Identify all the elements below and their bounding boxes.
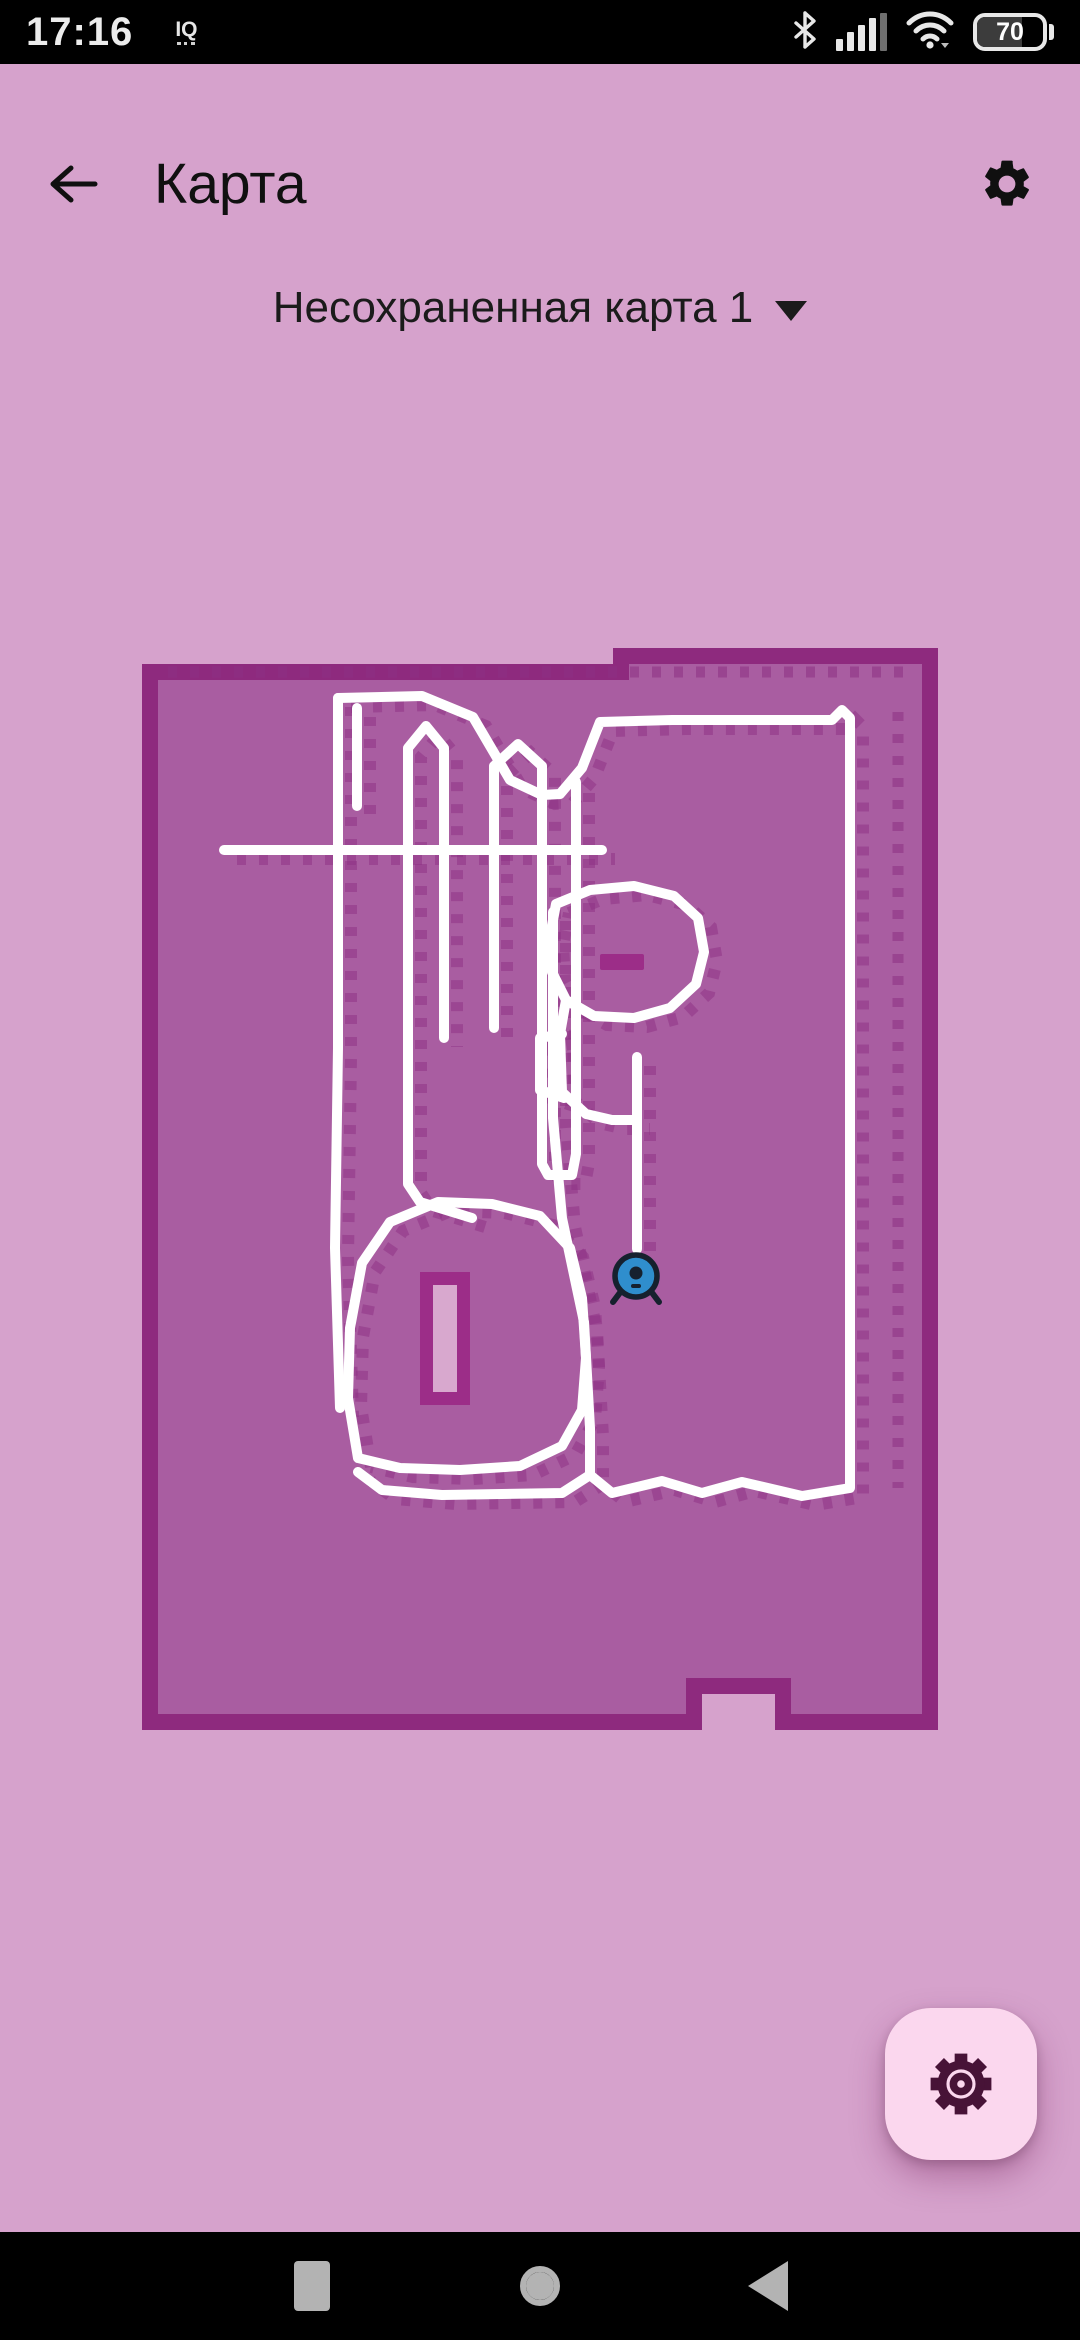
back-arrow-icon (45, 160, 101, 208)
robot-marker (613, 1255, 659, 1302)
nav-recents-button[interactable] (284, 2258, 340, 2314)
nav-back-button[interactable] (740, 2258, 796, 2314)
status-bar: 17:16 IQ (0, 0, 1080, 64)
page-title: Карта (154, 151, 307, 217)
settings-button[interactable] (978, 155, 1036, 213)
map-canvas[interactable] (142, 648, 938, 1730)
recents-square-icon (294, 2261, 330, 2311)
status-time: 17:16 (26, 10, 133, 55)
notification-icon-iq: IQ (175, 19, 197, 45)
app-header: Карта (0, 128, 1080, 240)
gear-outline-icon (923, 2046, 999, 2122)
map-selector-label: Несохраненная карта 1 (273, 283, 754, 333)
nav-home-button[interactable] (512, 2258, 568, 2314)
wifi-icon (905, 9, 955, 56)
back-button[interactable] (44, 155, 102, 213)
battery-indicator: 70 (973, 13, 1054, 51)
battery-percent: 70 (996, 18, 1024, 47)
home-circle-icon (520, 2266, 560, 2306)
map-selector-dropdown[interactable]: Несохраненная карта 1 (0, 276, 1080, 340)
screen: 17:16 IQ (0, 0, 1080, 2340)
cell-signal-icon (836, 13, 887, 51)
gear-icon (979, 156, 1035, 212)
map-svg (142, 648, 938, 1730)
map-settings-fab[interactable] (885, 2008, 1037, 2160)
bluetooth-icon (792, 10, 818, 55)
android-nav-bar (0, 2232, 1080, 2340)
chevron-down-icon (775, 301, 807, 321)
back-triangle-icon (748, 2261, 788, 2311)
